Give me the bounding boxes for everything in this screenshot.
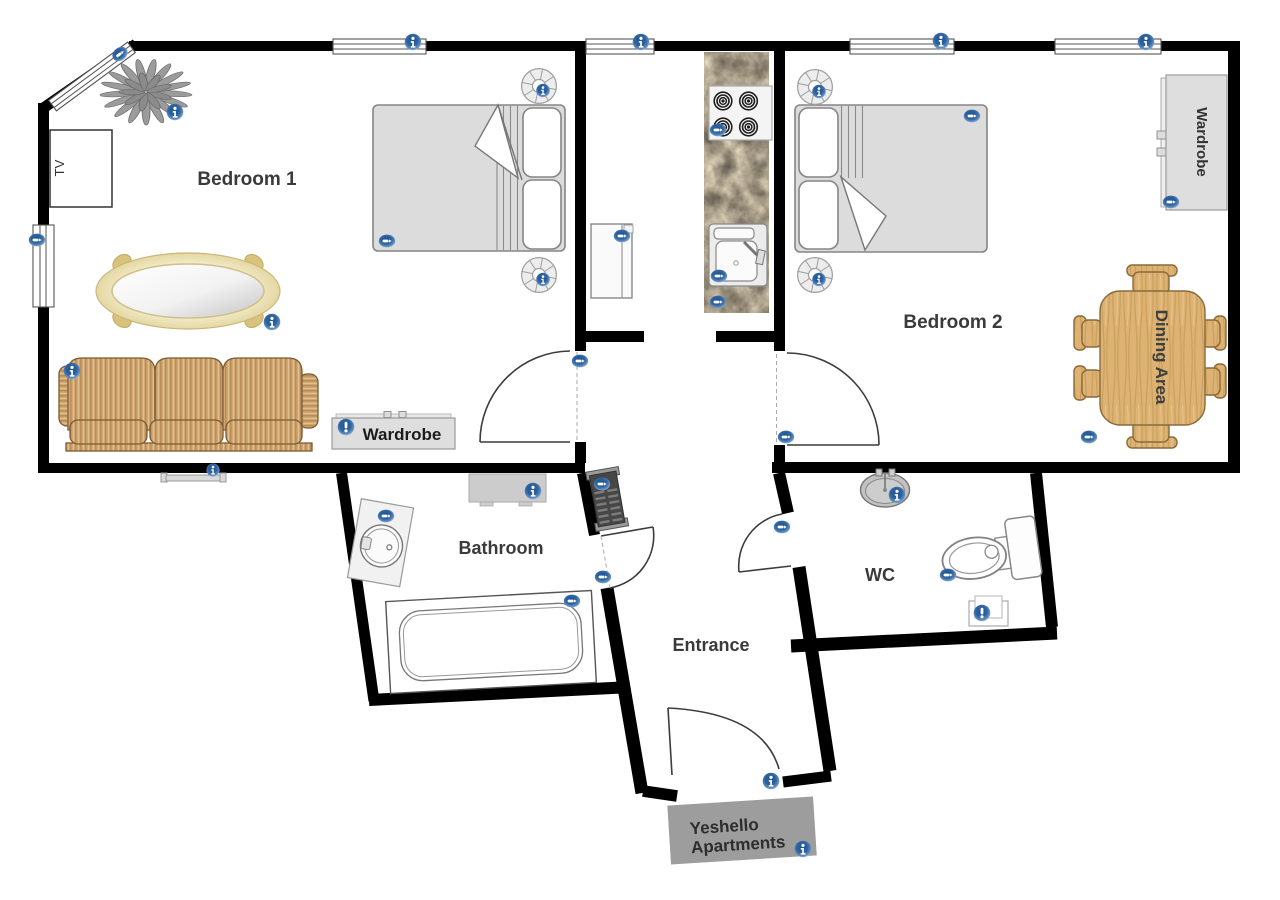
svg-text:Wardrobe: Wardrobe (1193, 107, 1210, 176)
svg-text:Bedroom 1: Bedroom 1 (197, 169, 297, 190)
svg-text:Entrance: Entrance (672, 635, 749, 655)
svg-text:Wardrobe: Wardrobe (363, 425, 442, 444)
svg-text:Bedroom 2: Bedroom 2 (903, 312, 1002, 333)
svg-text:Dining Area: Dining Area (1152, 310, 1171, 405)
svg-text:TV: TV (52, 159, 67, 176)
svg-text:Bathroom: Bathroom (459, 538, 544, 558)
svg-text:WC: WC (865, 565, 895, 585)
